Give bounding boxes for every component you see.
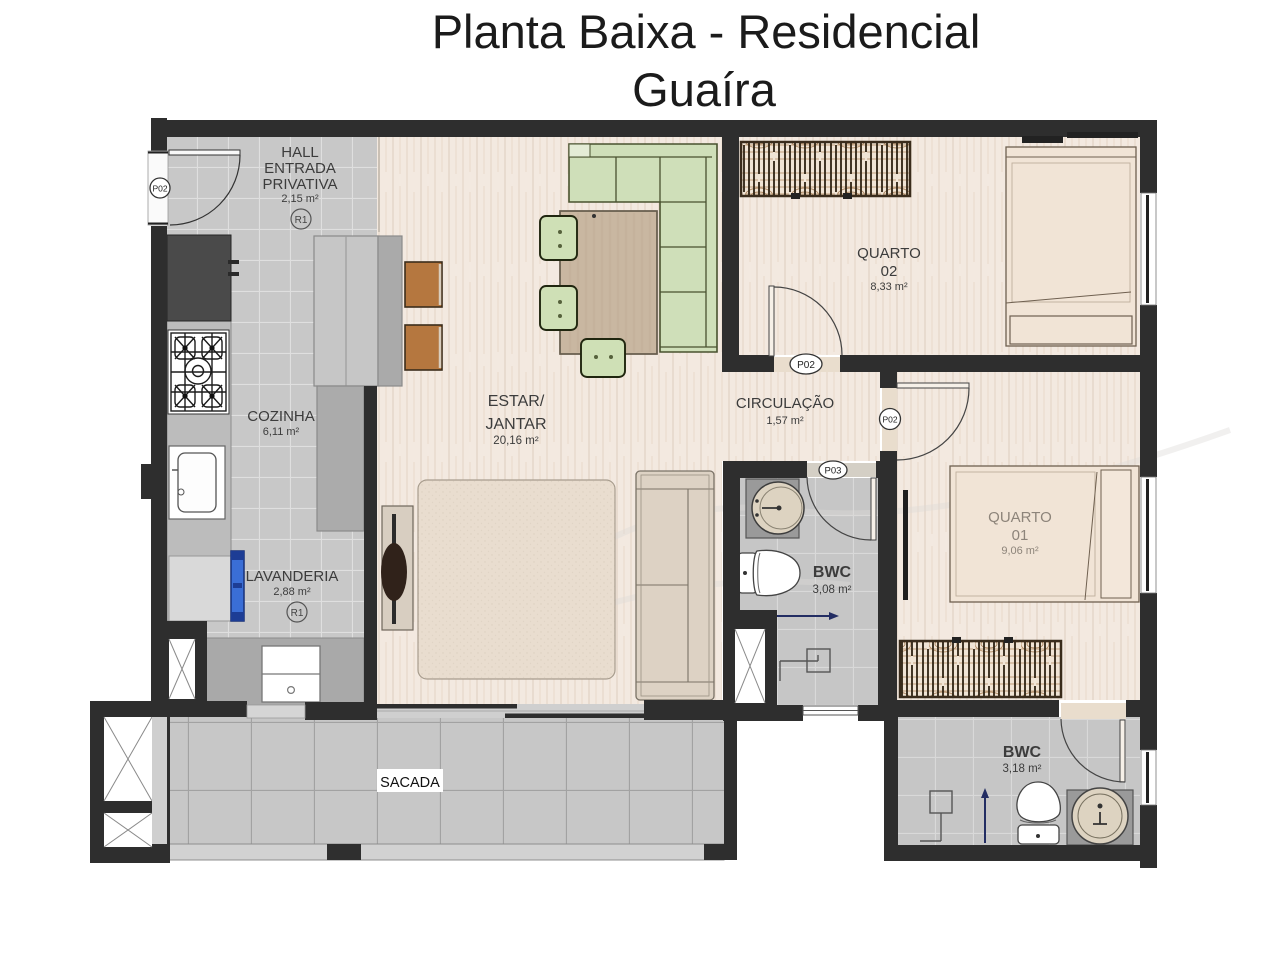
svg-text:JANTAR: JANTAR <box>485 416 546 433</box>
svg-text:02: 02 <box>881 263 898 280</box>
svg-text:HALL: HALL <box>281 144 319 161</box>
svg-text:Planta Baixa - Residencial: Planta Baixa - Residencial <box>432 5 981 58</box>
svg-text:QUARTO: QUARTO <box>857 245 921 262</box>
svg-text:BWC: BWC <box>1003 744 1042 761</box>
svg-text:R1: R1 <box>295 215 308 226</box>
svg-text:COZINHA: COZINHA <box>247 408 315 425</box>
svg-text:PRIVATIVA: PRIVATIVA <box>262 176 337 193</box>
svg-text:3,18 m²: 3,18 m² <box>1003 763 1042 775</box>
svg-text:LAVANDERIA: LAVANDERIA <box>246 568 339 585</box>
svg-text:BWC: BWC <box>813 564 852 581</box>
svg-text:ENTRADA: ENTRADA <box>264 160 336 177</box>
svg-text:P02: P02 <box>797 360 815 371</box>
svg-text:Guaíra: Guaíra <box>632 63 777 116</box>
svg-text:2,15 m²: 2,15 m² <box>281 193 319 205</box>
svg-text:8,33 m²: 8,33 m² <box>870 281 908 293</box>
svg-text:CIRCULAÇÃO: CIRCULAÇÃO <box>736 395 834 412</box>
svg-text:P02: P02 <box>882 415 897 425</box>
svg-text:SACADA: SACADA <box>380 775 440 791</box>
svg-text:9,06 m²: 9,06 m² <box>1001 545 1039 557</box>
svg-text:20,16 m²: 20,16 m² <box>493 435 539 447</box>
svg-text:P02: P02 <box>152 184 167 194</box>
svg-text:ESTAR/: ESTAR/ <box>488 393 545 410</box>
svg-text:1,57 m²: 1,57 m² <box>766 415 804 427</box>
svg-text:2,88 m²: 2,88 m² <box>273 586 311 598</box>
svg-text:P03: P03 <box>825 466 842 477</box>
svg-text:QUARTO: QUARTO <box>988 509 1052 526</box>
svg-text:01: 01 <box>1012 527 1029 544</box>
svg-text:6,11 m²: 6,11 m² <box>263 426 300 438</box>
svg-text:3,08 m²: 3,08 m² <box>813 584 852 596</box>
svg-text:R1: R1 <box>291 608 304 619</box>
